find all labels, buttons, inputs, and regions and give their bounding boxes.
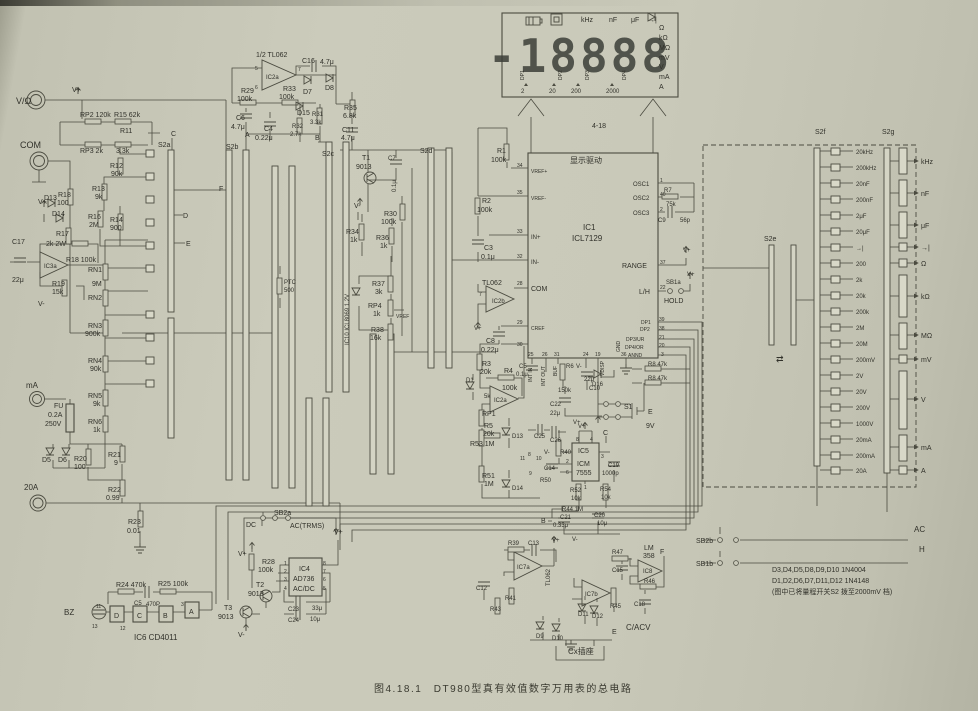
schematic-label: (图中已将量程开关S2 拨至2000mV 档) xyxy=(772,587,892,596)
schematic-label: 35 xyxy=(517,190,523,196)
schematic-label: D3,D4,D5,D8,D9,D10 1N4004 xyxy=(772,567,866,574)
schematic-label: RANGE xyxy=(622,263,647,270)
schematic-label: 28 xyxy=(517,281,523,287)
schematic-label: R12 xyxy=(110,163,123,170)
schematic-label: R22 xyxy=(108,487,121,494)
schematic-label: C xyxy=(137,613,142,620)
schematic-label: D15 xyxy=(297,110,310,117)
schematic-label: V+ xyxy=(474,326,482,332)
schematic-label: 1 xyxy=(284,561,287,567)
schematic-label: R29 xyxy=(241,88,254,95)
schematic-label: Cx插座 xyxy=(568,646,594,656)
schematic-label: R4 xyxy=(504,368,513,375)
schematic-label: 9 xyxy=(114,460,118,467)
schematic-label: 20A xyxy=(24,483,39,492)
schematic-label: R6 xyxy=(566,364,574,370)
schematic-label: D11 xyxy=(578,612,589,618)
schematic-label: INT IN xyxy=(528,367,534,382)
schematic-label: 21 xyxy=(659,335,665,341)
lcd-right-unit: V xyxy=(659,64,664,71)
schematic-label: 2M xyxy=(89,222,99,229)
schematic-label: 6 xyxy=(323,577,326,583)
schematic-label: D9 xyxy=(536,634,544,640)
schematic-label: S2d xyxy=(420,148,433,155)
schematic-label: R23 xyxy=(128,519,141,526)
schematic-label: 20k xyxy=(480,369,492,376)
schematic-label: F xyxy=(219,186,223,193)
range-contact: 20M xyxy=(820,340,868,348)
schematic-label: 900k xyxy=(85,331,101,338)
schematic-label: RN4 xyxy=(88,358,102,365)
svg-text:nF: nF xyxy=(921,191,929,198)
schematic-label: V- xyxy=(576,364,582,370)
schematic-label: 0.1μ xyxy=(481,254,495,261)
schematic-label: C20 xyxy=(594,513,606,519)
schematic-label: A xyxy=(189,609,194,616)
range-contact: 200 xyxy=(820,260,867,268)
range-contacts: 20kHz 200kHz 20nF 200nF xyxy=(820,148,876,475)
schematic-label: DP3/UR xyxy=(626,337,645,343)
schematic-label: SB1b xyxy=(696,561,713,568)
wires-right-box xyxy=(703,268,908,563)
schematic-label: 358 xyxy=(643,553,655,560)
schematic-label: R7 xyxy=(664,188,672,194)
schematic-label: V- xyxy=(544,450,550,456)
schematic-label: 100k xyxy=(502,385,518,392)
schematic-label: V+ xyxy=(578,424,586,430)
terminal-ma xyxy=(30,392,45,407)
schematic-label: R15 62k xyxy=(114,112,141,119)
schematic-label: R18 xyxy=(58,192,71,199)
schematic-label: C xyxy=(603,430,608,437)
schematic-label: 16k xyxy=(370,335,382,342)
schematic-label: B xyxy=(163,613,168,620)
schematic-label: 1k xyxy=(93,427,101,434)
svg-text:20μF: 20μF xyxy=(856,230,870,236)
schematic-label: R21 xyxy=(108,452,121,459)
schematic-label: D14 xyxy=(52,211,65,218)
schematic-label: BZ xyxy=(64,608,74,617)
schematic-label: 4.7μ xyxy=(320,59,334,66)
schematic-label: D13 xyxy=(512,434,524,440)
battery-icon xyxy=(526,17,542,25)
schematic-label: V- xyxy=(354,203,361,210)
schematic-label: E xyxy=(648,409,653,416)
schematic-label: 75k xyxy=(666,202,677,208)
schematic-label: 150k xyxy=(558,388,572,394)
schematic-label: C5 xyxy=(134,601,142,607)
unit-contact: kΩ xyxy=(890,275,930,317)
schematic-label: 100k xyxy=(477,207,493,214)
schematic-label: 20k xyxy=(483,431,495,438)
schematic-label: H xyxy=(919,545,925,554)
schematic-label: 2 xyxy=(566,459,569,465)
schematic-label: R38 xyxy=(371,327,384,334)
schematic-label: V- xyxy=(38,301,45,308)
schematic-label: R19 xyxy=(52,281,65,288)
svg-text:20A: 20A xyxy=(856,469,867,475)
schematic-label: C8 xyxy=(486,338,495,345)
schematic-label: 4.7μ xyxy=(231,124,245,131)
range-contact: 2μF xyxy=(820,212,867,220)
schematic-label: 0.33μ xyxy=(553,523,569,529)
schematic-label: mA xyxy=(26,381,39,390)
schematic-label: DP4 xyxy=(622,70,628,80)
lcd-right-unit: A xyxy=(659,84,664,91)
svg-text:200kHz: 200kHz xyxy=(856,166,876,172)
svg-text:1000V: 1000V xyxy=(856,422,873,428)
range-contact: 20k xyxy=(820,292,867,300)
schematic-label: IC5 xyxy=(578,448,589,455)
schematic-label: AD736 xyxy=(293,576,315,583)
unit-contact: V xyxy=(890,371,926,429)
schematic-label: 6 xyxy=(566,470,569,476)
schematic-label: R17 xyxy=(56,231,69,238)
schematic-label: 5 xyxy=(323,586,326,592)
svg-text:mV: mV xyxy=(921,357,932,364)
square-indicator-icon xyxy=(551,14,562,25)
range-contact: 20mA xyxy=(820,436,872,444)
schematic-label: C5 xyxy=(519,364,527,370)
schematic-label: 500 xyxy=(284,288,295,294)
terminal-20a xyxy=(30,495,46,511)
schematic-label: F xyxy=(660,549,664,556)
schematic-label: V+ xyxy=(38,199,47,206)
schematic-label: 9013 xyxy=(218,614,234,621)
schematic-label: 38 xyxy=(659,326,665,332)
schematic-label: 3 xyxy=(601,454,604,460)
schematic-label: R34 xyxy=(346,229,359,236)
schematic-label: ICL7129 xyxy=(572,234,603,243)
lcd-right-unit: Ω xyxy=(659,25,664,32)
svg-text:200mV: 200mV xyxy=(856,358,875,364)
schematic-label: 7 xyxy=(479,292,482,298)
schematic-label: 10 xyxy=(536,456,542,462)
schematic-label: L/H xyxy=(639,289,650,296)
lcd-right-unit: MΩ xyxy=(659,45,670,52)
schematic-label: IN- xyxy=(531,260,539,266)
schematic-label: AC xyxy=(914,525,925,534)
schematic-label: RN5 xyxy=(88,393,102,400)
schematic-label: 1M xyxy=(484,481,494,488)
schematic-label: 1k xyxy=(350,237,358,244)
schematic-label: 25 xyxy=(528,352,534,358)
schematic-label: R2 xyxy=(482,198,491,205)
schematic-label: R8 47k xyxy=(648,376,668,382)
schematic-label: R25 100k xyxy=(158,581,188,588)
schematic-label: 22μ xyxy=(12,277,24,284)
schematic-label: D10 xyxy=(552,636,564,642)
svg-text:V: V xyxy=(921,397,926,404)
schematic-label: 8 xyxy=(576,437,579,443)
schematic-label: S2g xyxy=(882,129,895,136)
schematic-label: 7555 xyxy=(576,470,592,477)
schematic-canvas: -18888 kHznFμF→| ΩkΩMΩmVVmAA 2202002000 xyxy=(0,0,978,711)
lcd-top-units: kHznFμF→| xyxy=(581,17,657,24)
schematic-label: S2a xyxy=(158,142,171,149)
schematic-label: 0.1μ xyxy=(516,372,528,378)
unit-contact: mV xyxy=(890,355,932,364)
common-bar-s2g xyxy=(884,148,890,473)
schematic-label: COM xyxy=(20,140,41,150)
schematic-label: S2c xyxy=(322,151,335,158)
schematic-label: INT OUT xyxy=(541,366,547,386)
svg-text:2k: 2k xyxy=(856,278,863,284)
schematic-label: IC8 xyxy=(643,569,653,575)
range-contact: 20nF xyxy=(820,180,870,188)
schematic-label: 1 xyxy=(660,178,663,184)
figure-caption: 图4.18.1 DT980型真有效值数字万用表的总电路 xyxy=(374,682,632,695)
schematic-label: R8 47k xyxy=(648,362,668,368)
schematic-label: 470P xyxy=(146,602,160,608)
schematic-label: C26 xyxy=(550,438,562,444)
wiper-bar-1 xyxy=(769,245,774,345)
schematic-label: C11 xyxy=(342,127,354,134)
schematic-label: C16 xyxy=(302,58,315,65)
range-contact: 2k xyxy=(820,276,863,284)
schematic-label: C22 xyxy=(550,402,562,408)
lcd-top-unit: μF xyxy=(631,17,639,24)
schematic-label: 3.3k xyxy=(310,120,322,126)
schematic-label: C7 xyxy=(388,156,396,162)
range-contact: 200mA xyxy=(820,452,875,460)
svg-text:20V: 20V xyxy=(856,390,867,396)
schematic-label: 100k xyxy=(381,219,397,226)
schematic-label: T3 xyxy=(224,605,232,612)
svg-text:20k: 20k xyxy=(856,294,867,300)
schematic-label: RN6 xyxy=(88,419,102,426)
schematic-label: ⇄ xyxy=(776,354,784,364)
schematic-label: 4 xyxy=(590,437,593,443)
schematic-label: IC7b xyxy=(585,592,598,598)
schematic-label: 1k xyxy=(373,311,381,318)
schematic-label: C6 xyxy=(236,115,245,122)
schematic-label: 3 xyxy=(284,577,287,583)
schematic-label: V+ xyxy=(334,529,343,536)
svg-text:μF: μF xyxy=(921,223,929,230)
schematic-label: AC/DC xyxy=(293,586,315,593)
schematic-label: SB2a xyxy=(274,510,291,517)
schematic-label: 29 xyxy=(517,320,523,326)
schematic-label: 56p xyxy=(680,218,691,224)
schematic-label: 10μ xyxy=(597,521,608,527)
schematic-label: C12 xyxy=(476,586,488,592)
schematic-label: TL062 xyxy=(546,568,552,586)
schematic-label: C24 xyxy=(288,618,300,624)
svg-text:→|: →| xyxy=(921,245,930,252)
schematic-label: 0.22μ xyxy=(255,135,273,142)
schematic-label: 5 xyxy=(255,66,258,72)
schematic-label: 1k xyxy=(380,243,388,250)
svg-text:20kHz: 20kHz xyxy=(856,150,873,156)
schematic-label: VDISP xyxy=(600,360,606,376)
schematic-label: 3 xyxy=(661,352,664,358)
schematic-label: 8 xyxy=(528,452,531,458)
schematic-label: DP2 xyxy=(640,327,650,333)
schematic-label: 2k 2W xyxy=(46,241,66,248)
schematic-label: ICM xyxy=(577,461,590,468)
svg-text:→|: →| xyxy=(856,246,864,252)
schematic-label: DP3 xyxy=(585,70,591,80)
schematic-label: IC2a xyxy=(266,75,279,81)
ic-outlines xyxy=(40,60,662,622)
schematic-label: R36 xyxy=(376,235,389,242)
schematic-label: V+ xyxy=(72,87,81,94)
schematic-label: 5k xyxy=(484,394,491,400)
schematic-label: 31 xyxy=(554,352,560,358)
schematic-label: IC2b xyxy=(492,299,505,305)
schematic-label: D xyxy=(114,613,119,620)
schematic-label: C17 xyxy=(12,239,25,246)
schematic-label: R51 xyxy=(482,473,495,480)
dp-scale: 20 xyxy=(549,89,556,95)
schematic-label: S2f xyxy=(815,129,826,136)
schematic-label: 37 xyxy=(660,260,666,266)
schematic-label: TL062 xyxy=(482,280,502,287)
schematic-label: FU xyxy=(54,403,63,410)
dp-scale: 2 xyxy=(521,89,525,95)
schematic-label: R28 xyxy=(262,559,275,566)
schematic-label: R45 xyxy=(610,604,622,610)
svg-text:kHz: kHz xyxy=(921,159,934,166)
range-contact: 2M xyxy=(820,324,864,332)
range-contact: 1000V xyxy=(820,420,873,428)
schematic-label: V- xyxy=(238,632,245,639)
schematic-label: RN3 xyxy=(88,323,102,330)
schematic-label: R41 xyxy=(505,596,517,602)
schematic-label: 6.8k xyxy=(343,113,357,120)
range-contact: 2V xyxy=(820,372,863,380)
schematic-label: C19 xyxy=(608,463,620,469)
schematic-label: 33μ xyxy=(312,606,323,612)
svg-text:20mA: 20mA xyxy=(856,438,872,444)
range-contact: 20V xyxy=(820,388,867,396)
lcd-digits: -18888 xyxy=(488,29,672,83)
schematic-label: 2.7k xyxy=(290,132,302,138)
schematic-label: 100k xyxy=(491,157,507,164)
schematic-label: S2b xyxy=(226,144,239,151)
schematic-label: 15k xyxy=(52,289,64,296)
schematic-label: 11 xyxy=(96,604,101,610)
unit-contact: kHz xyxy=(890,148,934,174)
range-contact: 200kHz xyxy=(820,164,876,172)
schematic-label: B xyxy=(541,518,546,525)
schematic-label: D6 xyxy=(58,457,67,464)
schematic-label: 9V xyxy=(646,423,655,430)
schematic-label: RP1 xyxy=(482,411,496,418)
schematic-label: 100k xyxy=(237,96,253,103)
svg-text:2V: 2V xyxy=(856,374,863,380)
schematic-label: IC4 xyxy=(299,566,310,573)
schematic-label: IN+ xyxy=(531,235,541,241)
schematic-label: 10k xyxy=(601,495,612,501)
schematic-label: 24 xyxy=(583,352,589,358)
schematic-label: V/Ω xyxy=(16,96,32,106)
schematic-label: 10μ xyxy=(310,617,321,623)
schematic-label: R30 xyxy=(384,211,397,218)
svg-text:Ω: Ω xyxy=(921,261,926,268)
schematic-label: R24 470k xyxy=(116,582,146,589)
schematic-label: IC10 ICL8069 1.2V xyxy=(345,294,351,345)
lcd-right-unit: kΩ xyxy=(659,35,668,42)
schematic-label: C18 xyxy=(634,602,646,608)
schematic-label: 13 xyxy=(92,624,98,630)
schematic-label: C23 xyxy=(288,607,300,613)
svg-text:200mA: 200mA xyxy=(856,454,875,460)
schematic-label: 0.01 xyxy=(127,528,141,535)
schematic-label: 0.99 xyxy=(106,495,120,502)
schematic-label: C14 xyxy=(544,466,556,472)
schematic-label: R11 xyxy=(120,128,132,135)
schematic-label: DP1 xyxy=(520,70,526,80)
schematic-label: 22μ xyxy=(550,411,561,417)
schematic-label: R40 xyxy=(560,450,572,456)
unit-contact: mA xyxy=(890,435,932,461)
schematic-label: R54 xyxy=(600,487,612,493)
lcd-top-unit: nF xyxy=(609,17,617,24)
schematic-label: RP2 120k xyxy=(80,112,111,119)
display-connector-arrows xyxy=(518,99,666,116)
schematic-label: 10k xyxy=(571,496,582,502)
schematic-labels: V/ΩCOMmA20AV+RP2 120kR15 62kRP3 2kR113.3… xyxy=(12,52,925,656)
schematic-label: RP3 2k xyxy=(80,148,103,155)
svg-text:20nF: 20nF xyxy=(856,182,870,188)
schematic-label: 2 xyxy=(660,207,663,213)
schematic-label: R14 xyxy=(110,217,123,224)
schematic-label: R53 1M xyxy=(470,441,495,448)
schematic-label: DC xyxy=(246,522,256,529)
schematic-label: D xyxy=(183,213,188,220)
schematic-label: RP4 xyxy=(368,303,382,310)
schematic-label: R33 xyxy=(283,86,296,93)
schematic-label: 90k xyxy=(111,171,123,178)
schematic-label: 100k xyxy=(258,567,274,574)
lcd-right-unit: mV xyxy=(659,55,670,62)
schematic-label: R50 xyxy=(540,478,552,484)
schematic-label: C15 xyxy=(612,568,624,574)
schematic-label: 9M xyxy=(92,281,102,288)
scanned-schematic-page: -18888 kHznFμF→| ΩkΩMΩmVVmAA 2202002000 xyxy=(0,0,978,711)
lcd-top-unit: kHz xyxy=(581,17,594,24)
schematic-label: R32 xyxy=(292,124,304,130)
schematic-label: 9k xyxy=(93,401,101,408)
schematic-label: R31 xyxy=(312,112,324,118)
schematic-label: 30 xyxy=(517,342,523,348)
schematic-label: R16 xyxy=(88,214,101,221)
unit-contact: nF xyxy=(890,180,929,206)
svg-text:200: 200 xyxy=(856,262,867,268)
schematic-label: VREF+ xyxy=(531,169,547,175)
fuse-outline xyxy=(66,404,74,432)
dp-scale: 200 xyxy=(571,89,582,95)
schematic-label: R43 xyxy=(490,607,502,613)
schematic-label: D14 xyxy=(512,486,524,492)
schematic-label: BUF xyxy=(553,366,559,376)
schematic-label: 9013 xyxy=(248,591,264,598)
schematic-label: 7 xyxy=(298,67,301,73)
schematic-label: COM xyxy=(531,286,548,293)
schematic-label: S2e xyxy=(764,236,777,243)
schematic-label: C3 xyxy=(484,245,493,252)
schematic-label: C13 xyxy=(528,541,540,547)
schematic-label: 39 xyxy=(659,317,665,323)
schematic-label: SB1a xyxy=(666,280,681,286)
schematic-label: D8 xyxy=(325,85,334,92)
schematic-label: VREF xyxy=(396,314,409,320)
schematic-label: SB2b xyxy=(696,538,713,545)
schematic-label: 3.3k xyxy=(116,148,130,155)
schematic-label: R52 xyxy=(570,488,582,494)
